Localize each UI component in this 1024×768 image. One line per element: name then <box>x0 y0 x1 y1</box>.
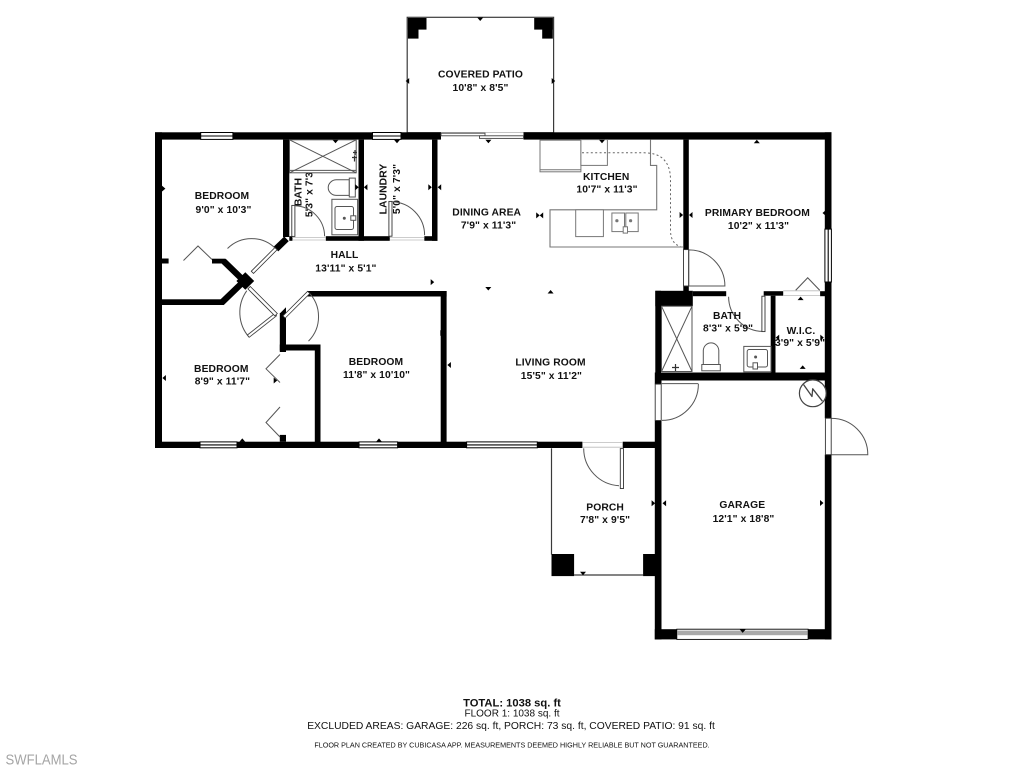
svg-text:BATH: BATH <box>293 178 304 206</box>
svg-text:13'11" x 5'1": 13'11" x 5'1" <box>315 263 376 274</box>
svg-text:BATH: BATH <box>713 311 741 322</box>
svg-text:FLOOR PLAN CREATED BY CUBICASA: FLOOR PLAN CREATED BY CUBICASA APP. MEAS… <box>314 741 709 750</box>
svg-text:EXCLUDED AREAS: GARAGE: 226 sq: EXCLUDED AREAS: GARAGE: 226 sq. ft, PORC… <box>307 721 715 732</box>
svg-text:7'8" x 9'5": 7'8" x 9'5" <box>580 515 630 526</box>
svg-text:KITCHEN: KITCHEN <box>583 172 629 183</box>
svg-text:3'9" x 5'9": 3'9" x 5'9" <box>775 338 825 349</box>
svg-text:SWFLAMLS: SWFLAMLS <box>6 751 78 768</box>
svg-text:BEDROOM: BEDROOM <box>195 191 249 202</box>
svg-text:11'8" x 10'10": 11'8" x 10'10" <box>343 370 410 381</box>
svg-text:5'3" x 7'3": 5'3" x 7'3" <box>305 167 316 217</box>
svg-text:5'0" x 7'3": 5'0" x 7'3" <box>392 164 403 214</box>
svg-text:12'1" x 18'8": 12'1" x 18'8" <box>713 514 775 525</box>
svg-text:HALL: HALL <box>331 250 359 261</box>
svg-text:FLOOR 1: 1038 sq. ft: FLOOR 1: 1038 sq. ft <box>464 709 559 720</box>
svg-text:10'7" x 11'3": 10'7" x 11'3" <box>576 184 637 195</box>
svg-text:BEDROOM: BEDROOM <box>194 364 248 375</box>
svg-text:PORCH: PORCH <box>586 502 624 513</box>
svg-text:PRIMARY BEDROOM: PRIMARY BEDROOM <box>705 208 810 219</box>
svg-text:COVERED PATIO: COVERED PATIO <box>438 70 523 81</box>
svg-text:LAUNDRY: LAUNDRY <box>379 164 390 215</box>
svg-text:LIVING ROOM: LIVING ROOM <box>515 358 585 369</box>
svg-text:W.I.C.: W.I.C. <box>787 326 816 337</box>
svg-text:10'8" x 8'5": 10'8" x 8'5" <box>453 83 509 94</box>
svg-text:15'5" x 11'2": 15'5" x 11'2" <box>521 371 582 382</box>
svg-text:GARAGE: GARAGE <box>719 500 765 511</box>
svg-text:10'2" x 11'3": 10'2" x 11'3" <box>728 221 789 232</box>
svg-text:9'0" x 10'3": 9'0" x 10'3" <box>196 205 252 216</box>
svg-text:DINING AREA: DINING AREA <box>452 208 521 219</box>
svg-text:8'3" x 5'9": 8'3" x 5'9" <box>703 324 753 335</box>
svg-text:7'9" x 11'3": 7'9" x 11'3" <box>461 221 516 232</box>
svg-text:BEDROOM: BEDROOM <box>349 357 403 368</box>
svg-text:8'9" x 11'7": 8'9" x 11'7" <box>195 377 250 388</box>
